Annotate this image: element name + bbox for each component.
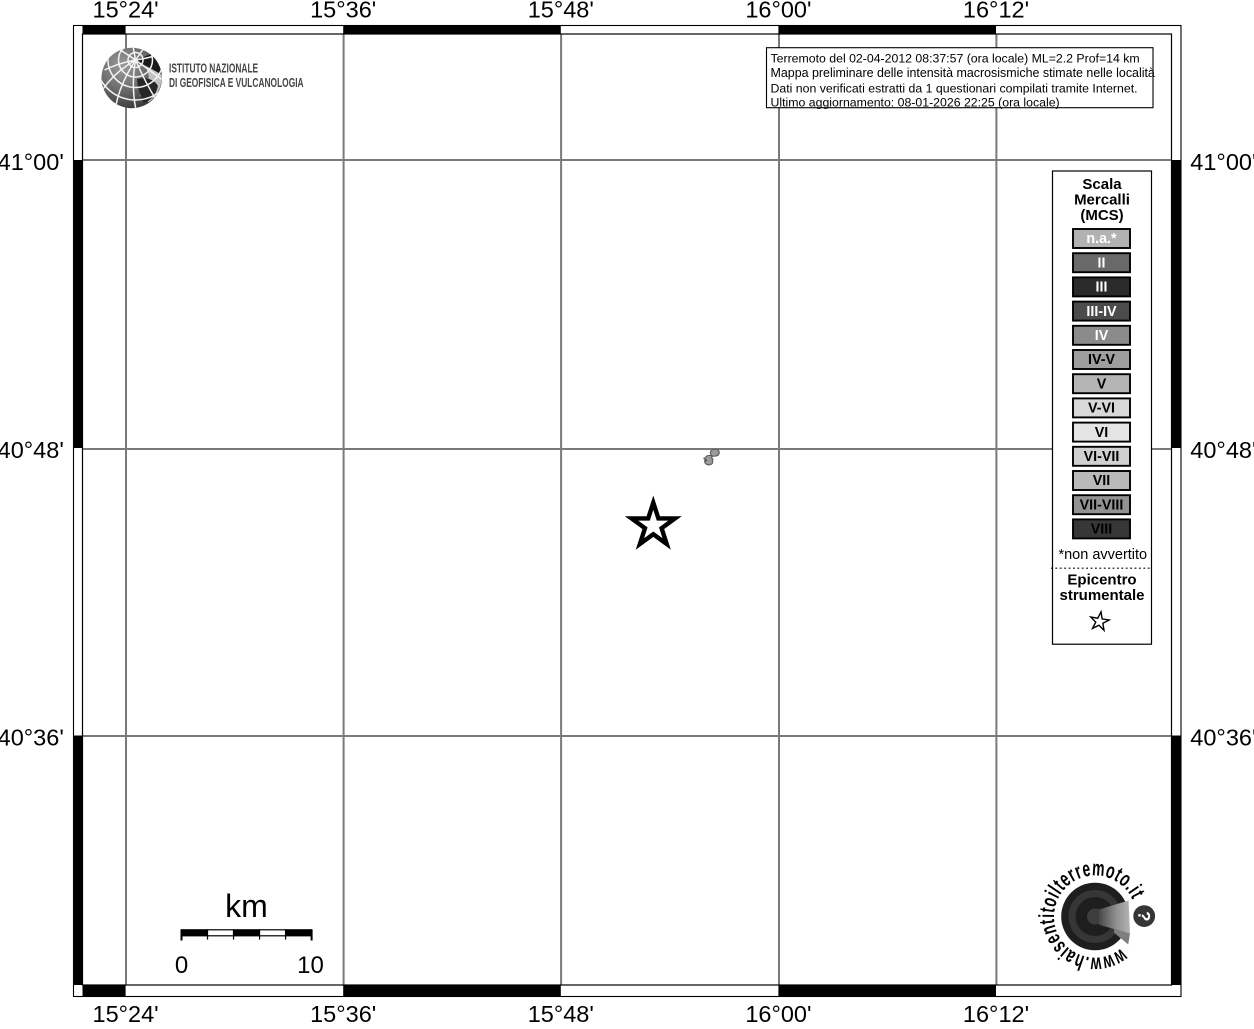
svg-text:16°12': 16°12' [963,1001,1029,1024]
svg-text:15°48': 15°48' [528,1001,594,1024]
svg-text:15°36': 15°36' [310,0,376,22]
svg-text:III: III [1096,280,1108,296]
svg-text:15°36': 15°36' [310,1001,376,1024]
svg-text:?: ? [1134,910,1154,922]
svg-text:km: km [225,888,268,924]
svg-text:DI GEOFISICA E VULCANOLOGIA: DI GEOFISICA E VULCANOLOGIA [169,76,304,90]
svg-text:VIII: VIII [1091,522,1112,538]
svg-text:III-IV: III-IV [1086,304,1117,320]
svg-text:41°00': 41°00' [1190,149,1254,175]
svg-text:15°48': 15°48' [528,0,594,22]
svg-text:IV: IV [1095,328,1109,344]
svg-text:II: II [1098,255,1106,271]
svg-text:Mappa preliminare delle intens: Mappa preliminare delle intensità macros… [771,66,1155,80]
svg-text:V: V [1097,376,1107,392]
svg-text:i: i [1034,914,1059,918]
svg-text:40°48': 40°48' [0,437,64,463]
svg-text:15°24': 15°24' [93,0,159,22]
svg-text:VI-VII: VI-VII [1084,449,1120,465]
svg-text:0: 0 [175,952,188,979]
svg-text:Terremoto del 02-04-2012 08:37: Terremoto del 02-04-2012 08:37:57 (ora l… [771,51,1140,65]
svg-text:40°36': 40°36' [0,725,64,751]
svg-text:IV-V: IV-V [1088,352,1115,368]
svg-text:41°00': 41°00' [0,149,64,175]
svg-text:16°00': 16°00' [745,0,811,22]
svg-text:40°48': 40°48' [1190,437,1254,463]
svg-text:16°00': 16°00' [745,1001,811,1024]
svg-text:VI: VI [1095,425,1109,441]
svg-text:10: 10 [297,952,324,979]
svg-text:15°24': 15°24' [93,1001,159,1024]
svg-text:V-VI: V-VI [1088,401,1115,417]
svg-text:40°36': 40°36' [1190,725,1254,751]
svg-text:16°12': 16°12' [963,0,1029,22]
svg-text:w: w [1090,953,1103,978]
svg-text:Dati non verificati estratti d: Dati non verificati estratti da 1 questi… [771,81,1138,95]
svg-text:ISTITUTO NAZIONALE: ISTITUTO NAZIONALE [169,62,258,76]
svg-text:n.a.*: n.a.* [1086,231,1117,247]
svg-text:*non avvertito: *non avvertito [1058,547,1147,563]
svg-text:strumentale: strumentale [1059,587,1144,604]
svg-text:VII: VII [1093,473,1111,489]
svg-text:VII-VIII: VII-VIII [1080,497,1124,513]
svg-text:(MCS): (MCS) [1080,207,1123,224]
svg-text:Ultimo aggiornamento: 08-01-20: Ultimo aggiornamento: 08-01-2026 22:25 (… [771,96,1060,110]
